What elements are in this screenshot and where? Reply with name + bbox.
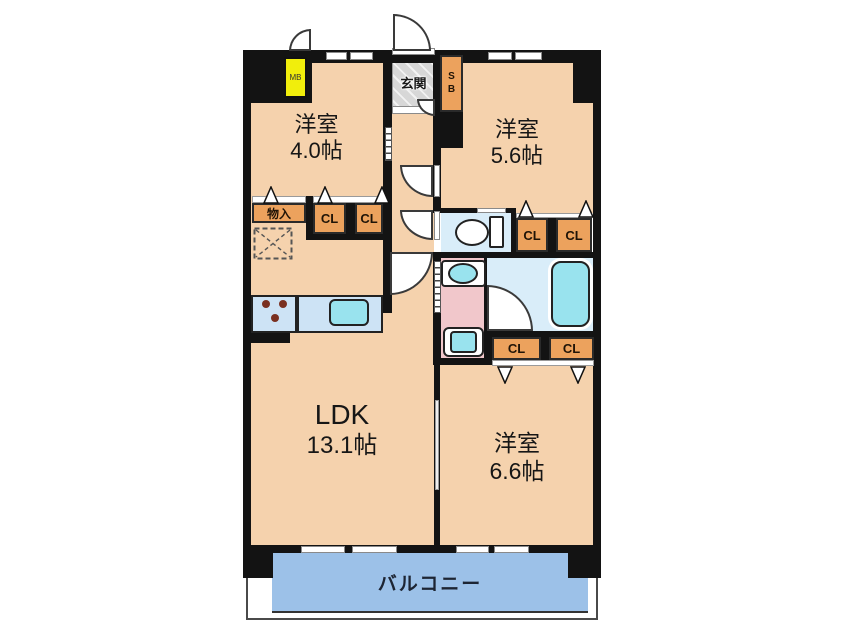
closet-box: CL xyxy=(313,203,346,234)
room-label-ldk: LDK 13.1帖 xyxy=(250,398,434,460)
sliding-door-ldk-bedroom xyxy=(435,400,439,490)
closet-label: CL xyxy=(563,341,580,356)
entrance-door-arc xyxy=(393,14,431,51)
wall-under-stove xyxy=(251,333,290,343)
wall-corner-bottom-right xyxy=(568,545,601,578)
stove-burner-icon xyxy=(262,300,270,308)
wall-bottom xyxy=(243,545,601,553)
room-name: 洋室 xyxy=(250,112,383,138)
entrance-label: 玄関 xyxy=(392,76,435,92)
toilet-bowl-icon xyxy=(455,219,489,246)
closet-label: CL xyxy=(565,228,582,243)
room-name: 洋室 xyxy=(440,430,594,458)
refrigerator-space xyxy=(253,227,293,260)
window-top-bedroom-mid-a xyxy=(488,52,512,60)
wall-closet40-bottom xyxy=(306,234,392,240)
room-label-bedroom-large: 洋室 6.6帖 xyxy=(440,430,594,485)
closet-box: CL xyxy=(556,218,592,252)
closet-label: CL xyxy=(508,341,525,356)
stove-burner-icon xyxy=(271,314,279,322)
window-top-bedroom-small-b xyxy=(350,52,373,60)
window-top-bedroom-mid-b xyxy=(515,52,542,60)
washbasin-icon xyxy=(448,263,478,284)
closet-door-marker xyxy=(497,366,513,384)
doorway-toilet xyxy=(434,211,440,240)
room-area: 5.6帖 xyxy=(441,143,593,169)
closet-label: CL xyxy=(523,228,540,243)
closet-door-marker xyxy=(263,186,279,204)
toilet-tank xyxy=(489,216,504,248)
closet-door-marker xyxy=(578,200,594,218)
wall-closet66-left xyxy=(484,337,492,365)
closet-label: CL xyxy=(321,211,338,226)
wall-corner-bottom-left xyxy=(243,545,273,578)
closet-door-marker xyxy=(518,200,534,218)
room-label-bedroom-mid: 洋室 5.6帖 xyxy=(441,117,593,170)
wall-closet56-divider xyxy=(548,218,556,252)
window-balcony-ldk-a xyxy=(301,546,345,553)
room-name: 洋室 xyxy=(441,117,593,143)
closet-door-marker xyxy=(317,186,333,204)
bathtub-icon xyxy=(551,261,590,327)
closet-label: CL xyxy=(360,211,377,226)
storage-box: 物入 xyxy=(252,203,306,223)
window-balcony-bedroom-large-a xyxy=(456,546,489,553)
shoe-box-label: SB xyxy=(446,71,457,97)
washing-machine-drum-icon xyxy=(450,331,477,353)
window-toilet xyxy=(477,208,506,213)
sliding-door-washroom xyxy=(434,261,441,313)
closet-box: CL xyxy=(355,203,383,234)
closet-box: CL xyxy=(492,337,541,360)
closet-box: CL xyxy=(516,218,548,252)
room-area: 13.1帖 xyxy=(250,432,434,461)
floorplan: バルコニー MB SB 物入 CL xyxy=(0,0,846,634)
window-balcony-bedroom-large-b xyxy=(494,546,529,553)
meter-box: MB xyxy=(284,57,307,98)
room-name: LDK xyxy=(250,398,434,432)
window-top-bedroom-small-a xyxy=(326,52,347,60)
room-label-bedroom-small: 洋室 4.0帖 xyxy=(250,112,383,165)
meterbox-door-arc xyxy=(289,29,311,51)
room-area: 6.6帖 xyxy=(440,458,594,486)
window-balcony-ldk-b xyxy=(352,546,397,553)
wall-mid-horizontal xyxy=(433,252,594,258)
balcony-label: バルコニー xyxy=(272,574,588,597)
closet-door-marker xyxy=(374,186,390,204)
shoe-box: SB xyxy=(440,55,463,112)
closet-box: CL xyxy=(549,337,594,360)
wall-right xyxy=(593,50,601,552)
stove-burner-icon xyxy=(279,300,287,308)
lintel-storage xyxy=(252,196,306,203)
doorway-bedroom-mid xyxy=(434,165,440,197)
kitchen-sink-icon xyxy=(329,299,369,326)
wall-topright-block xyxy=(573,50,601,103)
sliding-door-bedroom-small xyxy=(385,127,392,161)
room-area: 4.0帖 xyxy=(250,138,383,164)
closet-door-marker xyxy=(570,366,586,384)
wall-closet66-divider xyxy=(541,337,549,360)
storage-label: 物入 xyxy=(267,205,291,222)
meter-box-label: MB xyxy=(290,73,302,82)
